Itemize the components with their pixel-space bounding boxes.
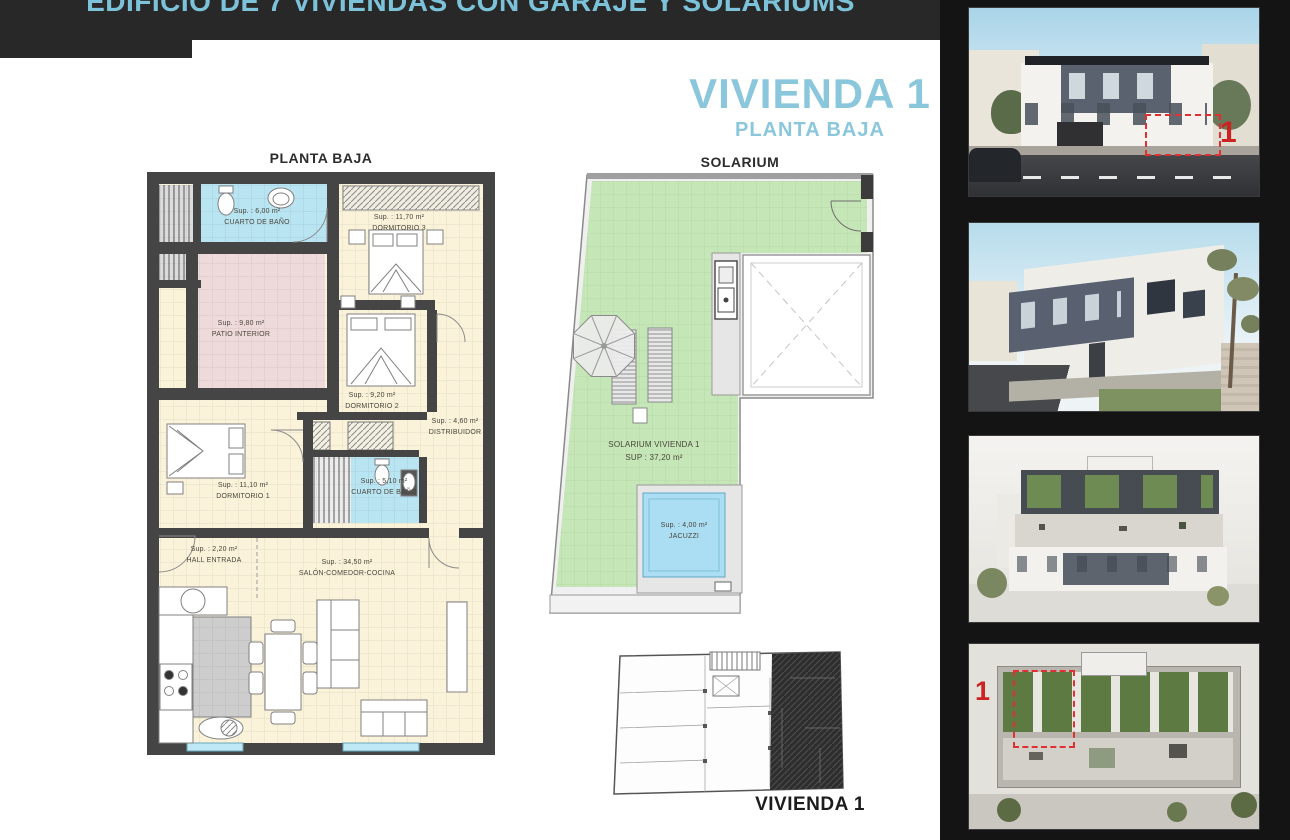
render-aerial-rear — [968, 435, 1260, 623]
facade-windows — [1069, 73, 1163, 99]
room-label-distribuidor: Sup. : 4,60 m²DISTRIBUIDOR — [390, 416, 520, 438]
floor-plan-drawing — [147, 172, 495, 755]
terrace-furniture — [1169, 744, 1187, 758]
step-strip — [550, 595, 740, 613]
sink-icon — [268, 188, 294, 208]
tree-icon — [997, 798, 1021, 822]
solarium-plan: SOLARIUM VIVIENDA 1SUP : 37,20 m² Sup. :… — [548, 168, 880, 620]
wall-segment — [861, 232, 873, 252]
render-street-perspective — [968, 222, 1260, 412]
unit-1-badge: 1 — [1220, 118, 1237, 148]
room-label-dorm1: Sup. : 11,10 m²DORMITORIO 1 — [178, 480, 308, 502]
road-markings — [985, 176, 1245, 179]
garage-door — [1057, 122, 1103, 148]
dwelling-title: VIVIENDA 1 — [650, 70, 970, 118]
window — [1147, 279, 1175, 314]
cabinet-icon — [447, 602, 467, 692]
floor-plan: Sup. : 6,00 m²CUARTO DE BAÑO Sup. : 11,7… — [147, 172, 495, 755]
facade-windows — [1017, 556, 1217, 572]
solarium-label: SOLARIUM VIVIENDA 1SUP : 37,20 m² — [574, 438, 734, 464]
tree-icon — [1207, 586, 1229, 606]
terrace-furniture — [1039, 524, 1045, 530]
room-label-patio: Sup. : 9,80 m²PATIO INTERIOR — [176, 318, 306, 340]
render-rooftop-aerial: 1 — [968, 643, 1260, 830]
document-title: EDIFICIO DE 7 VIVIENDAS CON GARAJE Y SOL… — [0, 0, 941, 18]
tree-icon — [1207, 249, 1237, 271]
tree-icon — [1167, 802, 1187, 822]
room-label-salon: Sup. : 34,50 m²SALÓN-COMEDOR-COCINA — [282, 557, 412, 579]
terrace-furniture — [1089, 748, 1115, 768]
rooftop-structure — [1081, 652, 1147, 676]
room-label-dorm3: Sup. : 11,70 m²DORMITORIO 3 — [334, 212, 464, 234]
elevator-icon — [713, 676, 739, 696]
stove-icon — [160, 664, 192, 710]
kitchen-sink-icon — [199, 717, 243, 739]
tree-icon — [1231, 792, 1257, 818]
tree-icon — [1227, 277, 1259, 301]
terrace-furniture — [1179, 522, 1186, 529]
solarium-sink-icon — [712, 253, 740, 395]
unit-1-badge: 1 — [975, 678, 990, 705]
key-plan-caption: VIVIENDA 1 — [690, 794, 865, 816]
void-opening — [743, 255, 870, 395]
wall-segment — [861, 175, 873, 199]
room-label-dorm2: Sup. : 9,20 m²DORMITORIO 2 — [307, 390, 437, 412]
key-plan-drawing — [610, 648, 860, 798]
terrace-furniture — [1029, 752, 1043, 760]
tree-icon — [1241, 315, 1260, 333]
rooftop-turf — [1027, 475, 1213, 508]
solarium-drawing — [548, 168, 880, 620]
room-label-hall: Sup. : 2,20 m²HALL ENTRADA — [149, 544, 279, 566]
umbrella-icon — [574, 316, 635, 377]
photo-strip: 1 — [940, 0, 1290, 840]
key-plan — [610, 648, 860, 798]
room-label-bath2: Sup. : 5,10 m²CUARTO DE BAÑO — [319, 476, 449, 498]
highlighted-unit — [770, 652, 843, 790]
car — [969, 148, 1021, 182]
sofa-icon — [317, 600, 359, 688]
tree-icon — [977, 568, 1007, 598]
dwelling-subtitle: PLANTA BAJA — [650, 119, 970, 142]
unit-1-outline — [1145, 114, 1221, 156]
table-icon — [633, 408, 647, 423]
header-bar: EDIFICIO DE 7 VIVIENDAS CON GARAJE Y SOL… — [0, 0, 941, 40]
window — [1183, 290, 1205, 319]
brick-wall — [1221, 343, 1260, 411]
page: EDIFICIO DE 7 VIVIENDAS CON GARAJE Y SOL… — [0, 0, 1290, 840]
render-front-elevation: 1 — [968, 7, 1260, 197]
room-label-bath1: Sup. : 6,00 m²CUARTO DE BAÑO — [192, 206, 322, 228]
jacuzzi-label: Sup. : 4,00 m²JACUZZI — [619, 520, 749, 542]
sofa-icon — [361, 700, 427, 736]
stairs-icon — [710, 652, 760, 670]
unit-1-outline — [1013, 670, 1075, 748]
floor-plan-title: PLANTA BAJA — [147, 150, 495, 166]
terrace-furniture — [1119, 526, 1127, 531]
solar-panels — [1025, 56, 1209, 65]
